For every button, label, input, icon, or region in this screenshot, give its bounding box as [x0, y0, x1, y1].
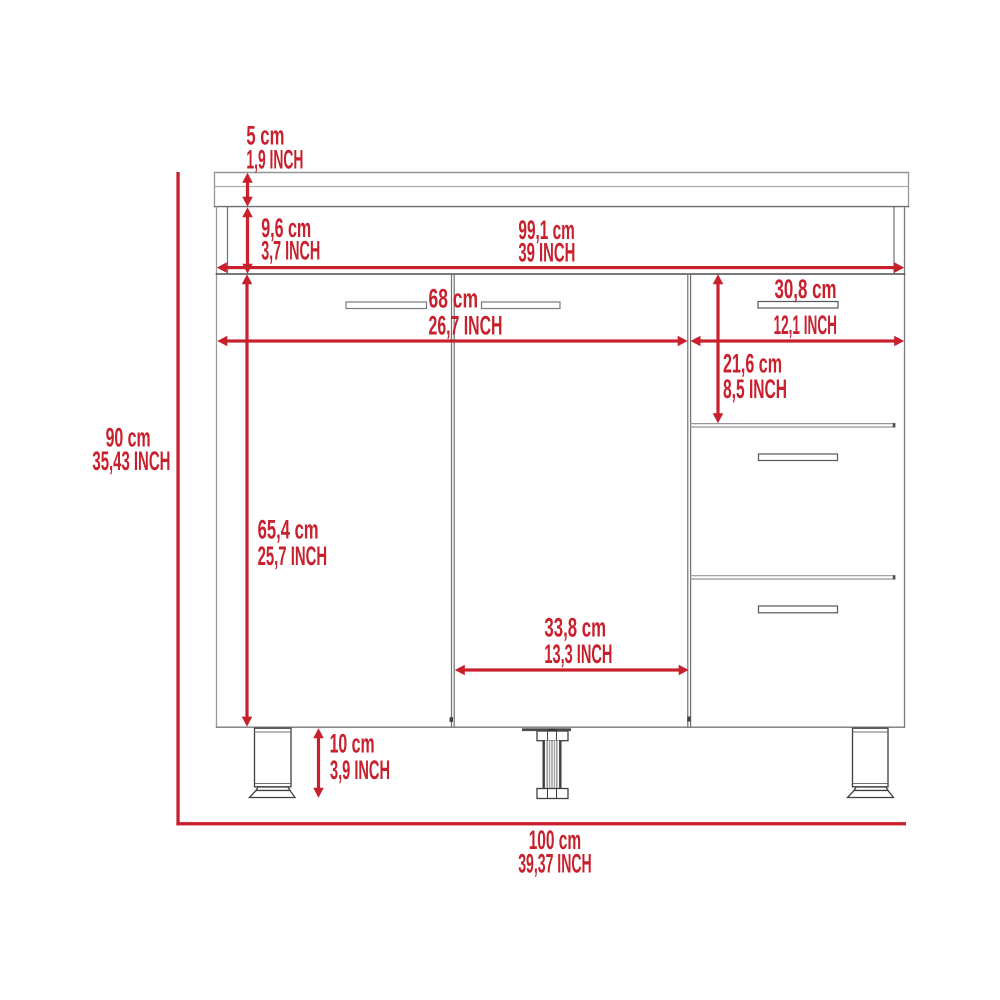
svg-text:65,4 cm: 65,4 cm [258, 514, 319, 544]
svg-text:10 cm: 10 cm [330, 728, 375, 758]
svg-text:25,7 INCH: 25,7 INCH [258, 541, 328, 571]
svg-text:13,3 INCH: 13,3 INCH [544, 639, 612, 669]
svg-text:8,5 INCH: 8,5 INCH [723, 374, 787, 404]
svg-text:68 cm: 68 cm [429, 284, 479, 314]
svg-text:30,8 cm: 30,8 cm [775, 274, 837, 304]
svg-text:3,9 INCH: 3,9 INCH [330, 755, 390, 785]
svg-text:1,9 INCH: 1,9 INCH [246, 145, 303, 175]
svg-text:26,7 INCH: 26,7 INCH [429, 311, 503, 341]
svg-text:39,37 INCH: 39,37 INCH [518, 849, 592, 879]
svg-text:39 INCH: 39 INCH [518, 238, 575, 268]
svg-text:3,7 INCH: 3,7 INCH [261, 236, 320, 266]
svg-text:35,43 INCH: 35,43 INCH [92, 446, 170, 476]
svg-text:12,1 INCH: 12,1 INCH [774, 310, 838, 340]
